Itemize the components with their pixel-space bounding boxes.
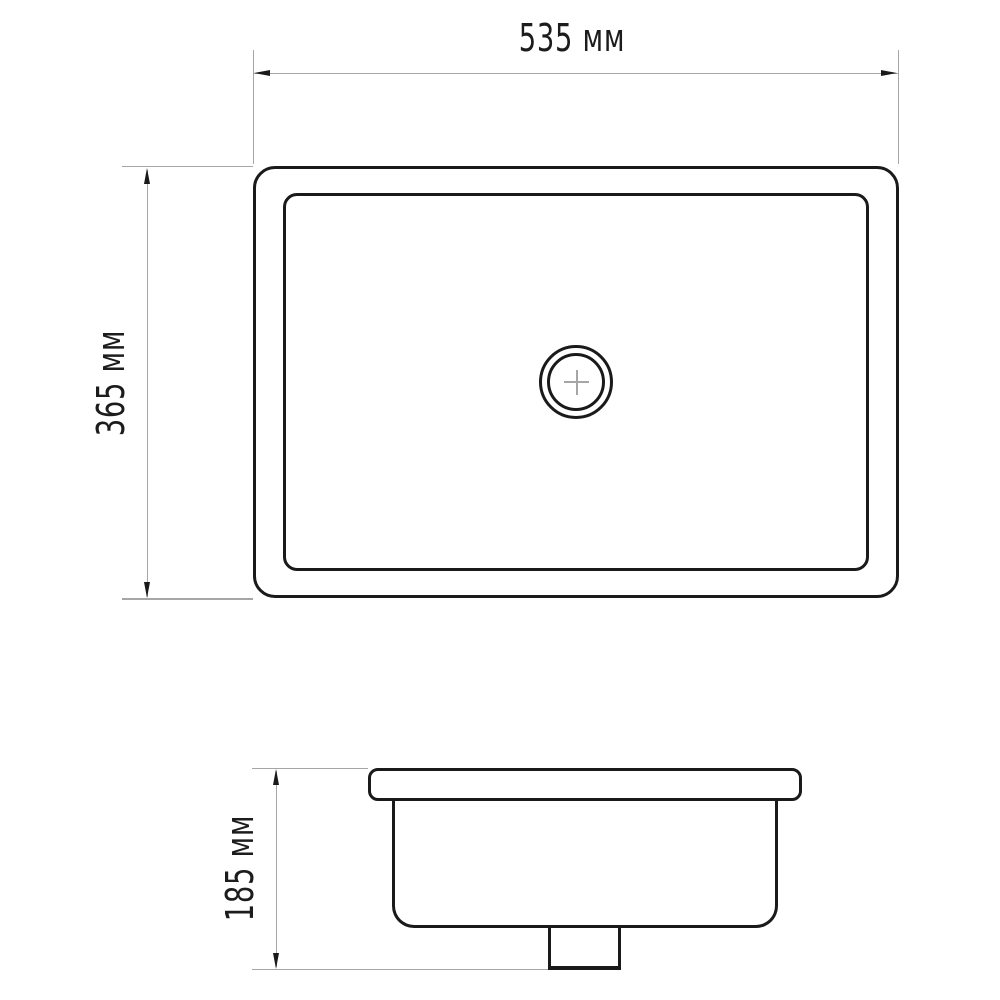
arrow-up-icon — [273, 769, 279, 785]
sink-side-body-outline — [392, 799, 778, 928]
dimension-width-label: 535 мм — [519, 19, 626, 57]
sink-dimension-drawing: 535 мм 365 мм 185 мм — [0, 0, 1000, 1000]
arrow-up-icon — [144, 168, 150, 184]
drain-crosshair-icon — [576, 370, 578, 395]
extension-line-left — [253, 50, 255, 164]
extension-line-right — [898, 50, 900, 164]
arrow-down-icon — [273, 953, 279, 969]
arrow-right-icon — [881, 70, 897, 76]
dimension-depth-label: 185 мм — [221, 815, 259, 922]
extension-line-bottom — [122, 598, 253, 600]
dimension-height-label: 365 мм — [92, 330, 130, 437]
arrow-left-icon — [254, 70, 270, 76]
dimension-depth-line — [276, 771, 278, 967]
arrow-down-icon — [144, 582, 150, 598]
sink-drain-stub-outline — [548, 925, 621, 970]
extension-line-top — [252, 768, 368, 770]
sink-side-rim-outline — [368, 768, 802, 801]
extension-line-top — [122, 166, 253, 168]
dimension-height-line — [147, 170, 149, 597]
dimension-width-line — [253, 73, 898, 75]
extension-line-bottom — [252, 969, 548, 971]
